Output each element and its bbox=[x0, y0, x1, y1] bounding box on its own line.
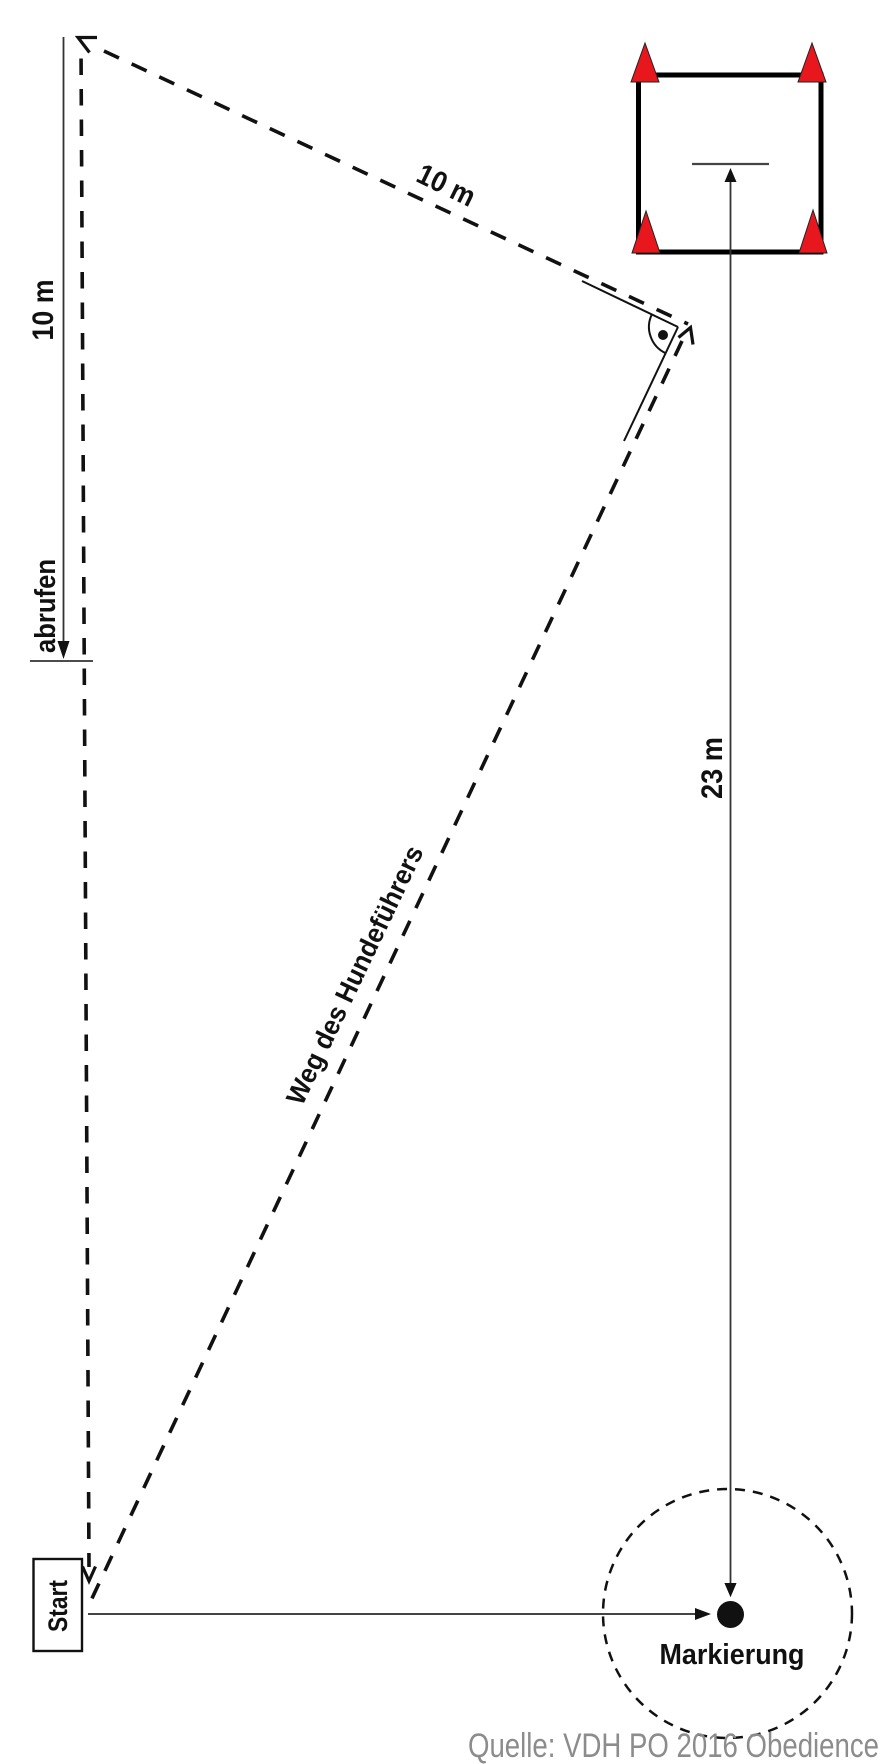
svg-text:Start: Start bbox=[43, 1580, 73, 1632]
svg-text:23 m: 23 m bbox=[696, 737, 729, 799]
svg-text:10 m: 10 m bbox=[27, 280, 60, 341]
svg-text:Quelle: VDH PO 2016 Obedience: Quelle: VDH PO 2016 Obedience bbox=[468, 1727, 879, 1764]
svg-text:abrufen: abrufen bbox=[30, 559, 62, 653]
svg-text:Markierung: Markierung bbox=[660, 1639, 805, 1671]
